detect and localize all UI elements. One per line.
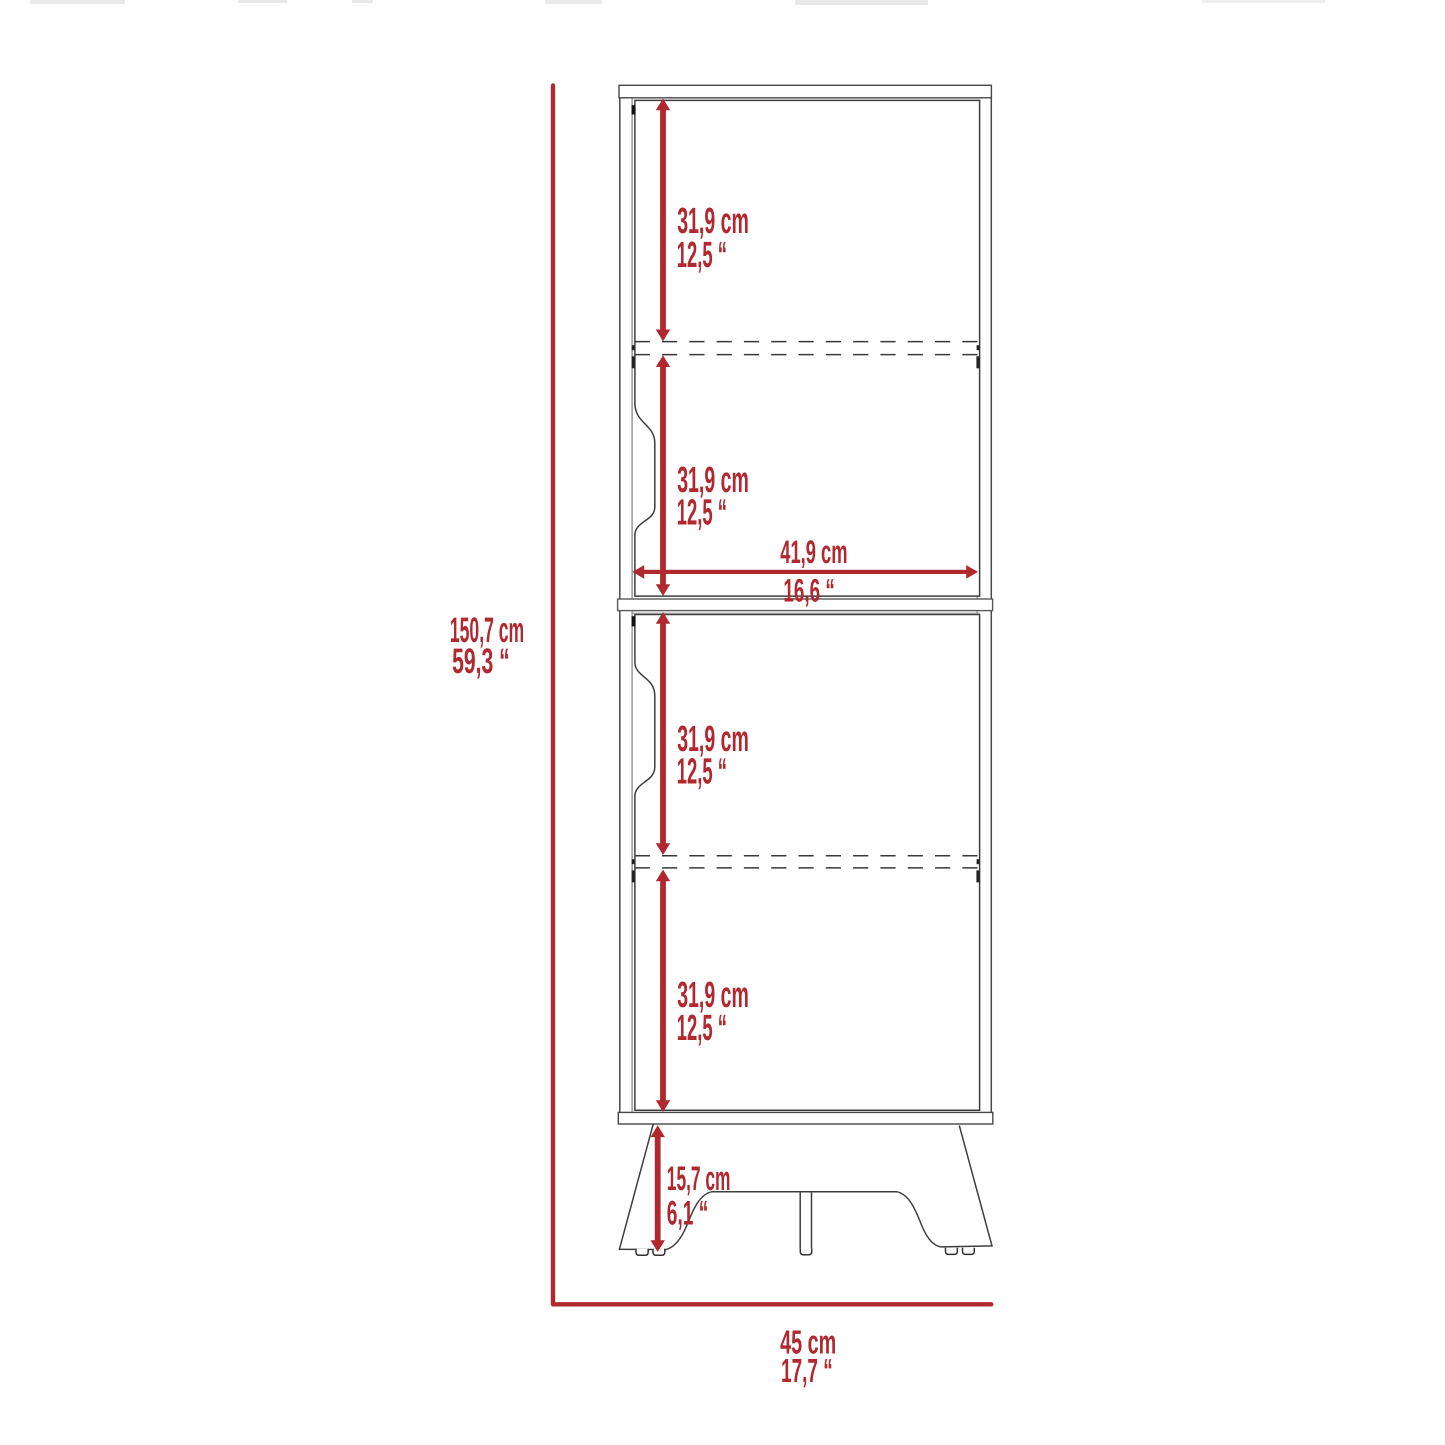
svg-text:59,3 “: 59,3 “ [452,641,510,681]
svg-text:16,6 “: 16,6 “ [783,572,834,609]
svg-text:41,9 cm: 41,9 cm [780,533,847,570]
svg-text:12,5 “: 12,5 “ [677,492,727,533]
svg-text:17,7 “: 17,7 “ [781,1353,833,1390]
svg-text:12,5 “: 12,5 “ [677,751,727,792]
svg-text:6,1 “: 6,1 “ [667,1195,709,1233]
svg-text:15,7 cm: 15,7 cm [667,1160,731,1198]
svg-text:12,5 “: 12,5 “ [677,1007,727,1048]
svg-text:12,5 “: 12,5 “ [677,234,727,275]
